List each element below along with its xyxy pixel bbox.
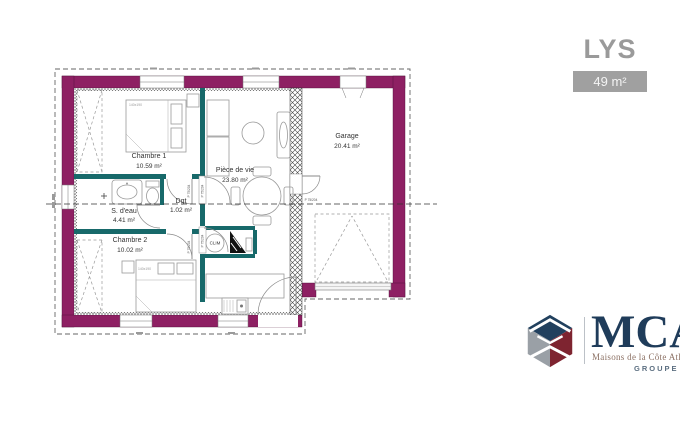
hexcube-icon (521, 312, 579, 370)
kitchen-sink-icon (222, 298, 248, 314)
window-chambre1 (140, 76, 184, 88)
room-area-chambre1: 10.59 m² (136, 163, 162, 170)
door-label: P 75/204 (187, 240, 191, 253)
window-living (243, 76, 279, 88)
area-badge: 49 m² (573, 71, 647, 92)
brand-divider (584, 317, 585, 364)
room-label-chambre1: Chambre 1 (132, 153, 167, 160)
window-chambre2 (120, 315, 152, 327)
nightstand-icon (122, 261, 134, 273)
room-label-chambre2: Chambre 2 (113, 237, 148, 244)
door-label: P 75/204 (201, 234, 205, 247)
bed-chambre1-icon: 140x190 (126, 100, 186, 152)
roof-overhang-outline (55, 69, 410, 334)
door-bathroom (137, 205, 160, 228)
window-bathroom (62, 185, 74, 209)
outlet-cross (101, 193, 107, 199)
window-garage (340, 76, 366, 98)
brand-group: GROUPE HEXAŌM (634, 364, 680, 373)
room-area-chambre2: 10.02 m² (117, 247, 143, 254)
cabinet-icons (207, 100, 229, 176)
brand-name: MCA (591, 309, 680, 356)
garage-door-icon (315, 214, 391, 290)
wardrobe-chambre2-icon (77, 240, 102, 313)
page-title: LYS (573, 34, 647, 65)
room-area-garage: 20.41 m² (334, 143, 360, 150)
wardrobe-chambre1-icon (77, 90, 102, 172)
nightstand-icon (187, 94, 199, 107)
room-label-dgt: Dgt (176, 198, 187, 205)
room-label-garage: Garage (335, 133, 358, 140)
door-label: P 75/204 (201, 184, 205, 197)
room-label-piece-de-vie: Pièce de vie (216, 167, 254, 174)
bed-size-label: 140x190 (129, 103, 142, 107)
clim-unit: CLIM (206, 234, 224, 252)
room-area-piece-de-vie: 23.80 m² (222, 177, 248, 184)
door-label: P 75/204 (187, 184, 191, 197)
toilet-icon (146, 181, 159, 204)
coffee-table-icon (242, 122, 264, 144)
duct-icon (230, 231, 252, 253)
door-chambre2: P 75/204 (167, 234, 192, 259)
room-area-dgt: 1.02 m² (170, 207, 193, 214)
door-label: P 75/204 (305, 198, 318, 202)
bed-chambre2-icon: 140x190 (136, 260, 196, 312)
window-kitchen (218, 315, 248, 327)
clim-label: CLIM (210, 241, 221, 246)
room-area-sdeau: 4.41 m² (113, 217, 136, 224)
room-label-sdeau: S. d'eau (111, 208, 137, 215)
bed-size-label: 140x190 (138, 267, 151, 271)
page: { "title": {"model": "LYS", "area": "49 … (0, 0, 680, 425)
water-heater-icon (277, 112, 290, 158)
dining-set-icon (231, 167, 293, 225)
kitchen-counter-icon (206, 274, 284, 298)
sink-icon (112, 180, 142, 204)
brand-tagline: Maisons de la Côte Atlantique (592, 352, 680, 362)
